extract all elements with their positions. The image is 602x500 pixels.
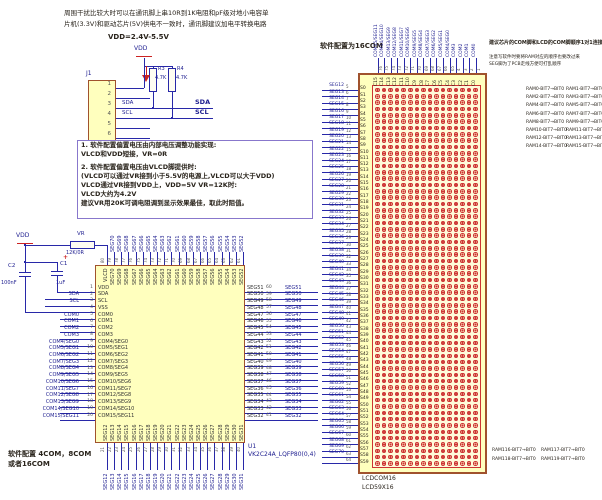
lcd-dot (395, 189, 400, 194)
net-label: SEG21 (329, 141, 344, 146)
net-label: SEG23 (329, 154, 344, 159)
lcd-dot (388, 373, 393, 378)
chip-pin-name: SEG42 (247, 346, 264, 351)
wire (243, 443, 244, 470)
lcd-pin-number: 44 (346, 331, 351, 335)
lcd-seg-row-label: S17 (360, 195, 369, 200)
lcd-dot (447, 183, 452, 188)
lcd-dot (401, 100, 406, 105)
lcd-dot (388, 278, 393, 283)
chip-pin-number: 78 (115, 258, 119, 263)
net-label: COM14/SEG10 (43, 407, 79, 412)
chip-pin-name: SEG56 (211, 268, 216, 285)
lcd-dot (428, 132, 433, 137)
lcd-pin-number: 50 (346, 369, 351, 373)
lcd-pin-number: 3 (464, 68, 468, 71)
wire (60, 420, 95, 421)
lcd-dot (401, 202, 406, 207)
ram-map-label: RAM118-BIT7→BIT0 (492, 458, 536, 463)
lcd-dot (408, 214, 413, 219)
wire (116, 118, 213, 119)
lcd-dot (460, 385, 465, 390)
lcd-dot (473, 392, 478, 397)
net-label: SEG34 (329, 223, 344, 228)
lcd-dot (375, 252, 380, 257)
lcd-dot (408, 461, 413, 466)
lcd-dot (421, 246, 426, 251)
chip-pin-number: 52 (266, 340, 272, 345)
lcd-seg-row-label: S57 (360, 448, 369, 453)
lcd-dot (460, 94, 465, 99)
net-label: SEG32 (285, 414, 302, 419)
ram-map-label: RAM4-BIT7→BIT0 (526, 104, 564, 109)
net-label: SEG49 (285, 299, 302, 304)
lcd-pin-number: 32 (346, 255, 351, 259)
lcd-dot (421, 417, 426, 422)
wire (116, 128, 150, 129)
chip-pin-name: SEG64 (154, 268, 159, 285)
net-label: SEG25 (329, 166, 344, 171)
lcd-dot (382, 442, 387, 447)
lcd-seg-row-label: S46 (360, 378, 369, 383)
chip-pin-number: 18 (80, 400, 93, 405)
chip-pin-name: COM5/SEG1 (98, 346, 128, 351)
lcd-dot (408, 126, 413, 131)
lcd-dot (388, 170, 393, 175)
lcd-pin-number: 13 (346, 135, 351, 139)
chip-pin-name: SEG51 (247, 286, 264, 291)
lcd-pin-number: 38 (346, 293, 351, 297)
lcd-dot (434, 195, 439, 200)
lcd-dot (460, 164, 465, 169)
lcd-dot (428, 157, 433, 162)
lcd-dot (415, 176, 420, 181)
lcd-dot (415, 411, 420, 416)
lcd-dot (395, 322, 400, 327)
lcd-dot (460, 145, 465, 150)
net-label: SEG64 (329, 413, 344, 418)
lcd-dot (447, 88, 452, 93)
lcd-dot (441, 176, 446, 181)
lcd-dot (434, 170, 439, 175)
chip-pin-name: SEG61 (176, 268, 181, 285)
lcd-dot (434, 259, 439, 264)
lcd-com-header: C11 (401, 77, 406, 86)
lcd-dot (421, 107, 426, 112)
lcd-seg-row-label: S28 (360, 264, 369, 269)
lcd-pin-number: 72 (405, 66, 409, 71)
net-label: COM13/SEG9 (388, 27, 393, 57)
lcd-dot (388, 183, 393, 188)
chip-pin-name: COM7/SEG3 (98, 360, 128, 365)
lcd-com-header: C4 (447, 79, 452, 85)
chip-pin-number: 56 (266, 313, 272, 318)
lcd-dot (473, 100, 478, 105)
chip-pin-name: SEG43 (247, 340, 264, 345)
lcd-dot (388, 271, 393, 276)
lcd-dot (447, 404, 452, 409)
lcd-dot (408, 170, 413, 175)
lcd-dot (460, 309, 465, 314)
lcd-dot (473, 404, 478, 409)
net-label: COM7/SEG3 (49, 360, 79, 365)
lcd-com-header: C6 (434, 79, 439, 85)
lcd-dot (408, 411, 413, 416)
lcd-dot (434, 366, 439, 371)
lcd-dot (401, 227, 406, 232)
lcd-dot (460, 411, 465, 416)
lcd-dot (382, 290, 387, 295)
lcd-dot (434, 297, 439, 302)
lcd-dot (428, 113, 433, 118)
net-label: COM3 (453, 44, 458, 57)
lcd-pin-number: 10 (346, 116, 351, 120)
lcd-dot (447, 449, 452, 454)
chip-pin-number: 21 (101, 447, 105, 452)
lcd-seg-row-label: S47 (360, 385, 369, 390)
lcd-dot (408, 322, 413, 327)
lcd-dot (473, 227, 478, 232)
lcd-dot (441, 113, 446, 118)
net-label: SEG51 (285, 286, 302, 291)
lcd-dot (454, 303, 459, 308)
lcd-com-header: C12 (394, 77, 399, 86)
lcd-pin-number: 20 (346, 179, 351, 183)
net-label: SEG19 (154, 473, 159, 490)
lcd-dot (421, 176, 426, 181)
lcd-seg-row-label: S50 (360, 404, 369, 409)
lcd-dot (434, 392, 439, 397)
lcd-dot (460, 183, 465, 188)
lcd-dot (421, 322, 426, 327)
lcd-dot (460, 303, 465, 308)
lcd-dot (447, 126, 452, 131)
net-label: COM14/SEG10 (381, 24, 386, 57)
net-label: COM1 (466, 44, 471, 57)
lcd-dot (401, 113, 406, 118)
chip-pin-number: 10 (80, 346, 93, 351)
wire (243, 252, 244, 265)
lcd-dot (454, 151, 459, 156)
lcd-dot (428, 442, 433, 447)
lcd-dot (375, 322, 380, 327)
lcd-dot (408, 290, 413, 295)
lcd-dot (401, 328, 406, 333)
lcd-dot (401, 240, 406, 245)
lcd-dot (421, 360, 426, 365)
lcd-dot (428, 119, 433, 124)
lcd-dot (428, 208, 433, 213)
lcd-dot (428, 461, 433, 466)
lcd-dot (408, 88, 413, 93)
lcd-name2: LCD59X16 (362, 485, 394, 491)
chip-pin-name: SEG39 (247, 366, 264, 371)
net-label: SEG19 (329, 129, 344, 134)
lcd-dot (375, 157, 380, 162)
lcd-dot (473, 214, 478, 219)
chip-pin-name: SDA (98, 292, 108, 297)
lcd-dot (382, 303, 387, 308)
net-label: SEG26 (329, 173, 344, 178)
chip-pin-number: 72 (158, 258, 162, 263)
lcd-dot (447, 233, 452, 238)
lcd-dot (388, 322, 393, 327)
lcd-dot (434, 322, 439, 327)
lcd-dot (375, 366, 380, 371)
lcd-dot (434, 442, 439, 447)
lcd-dot (401, 183, 406, 188)
lcd-dot (447, 290, 452, 295)
net-label: COM8/SEG4 (420, 30, 425, 57)
lcd-pin-number: 28 (346, 230, 351, 234)
lcd-note2: 注意写软件时要将RAM对应的顺序也要改过来 (489, 56, 580, 61)
chip-pin-name: COM0 (98, 313, 113, 318)
lcd-dot (441, 271, 446, 276)
chip-pin-number: 14 (80, 373, 93, 378)
lcd-dot (388, 335, 393, 340)
lcd-dot (401, 151, 406, 156)
wire (245, 420, 318, 421)
lcd-dot (473, 189, 478, 194)
lcd-seg-row-label: S10 (360, 151, 369, 156)
net-label: SEG39 (285, 366, 302, 371)
lcd-dot (408, 284, 413, 289)
chip-pin-number: 75 (137, 258, 141, 263)
chip-pin-name: SEG55 (219, 268, 224, 285)
net-label: SEG14 (118, 473, 123, 490)
lcd-dot (408, 157, 413, 162)
chip-pin-number: 68 (187, 258, 191, 263)
lcd-dot (441, 366, 446, 371)
lcd-dot (460, 221, 465, 226)
lcd-dot (408, 202, 413, 207)
lcd-dot (415, 404, 420, 409)
lcd-dot (388, 297, 393, 302)
chip-pin-number: 30 (165, 447, 169, 452)
lcd-dot (447, 392, 452, 397)
lcd-dot (460, 449, 465, 454)
net-label: SEG15 (329, 103, 344, 108)
lcd-dot (434, 240, 439, 245)
lcd-com-header: C5 (440, 79, 445, 85)
net-label: SEG52 (240, 235, 245, 252)
lcd-dot (382, 113, 387, 118)
vr-value: 12K/0R (66, 251, 84, 256)
lcd-dot (395, 170, 400, 175)
lcd-dot (375, 303, 380, 308)
lcd-pin-number: 56 (346, 407, 351, 411)
lcd-dot (408, 138, 413, 143)
resistor-r4-symbol (168, 68, 176, 92)
lcd-dot (388, 259, 393, 264)
chip-pin-number: 6 (80, 320, 93, 325)
lcd-dot (441, 404, 446, 409)
lcd-dot (408, 404, 413, 409)
net-label: COM1 (64, 319, 79, 324)
net-label: SEG15 (125, 473, 130, 490)
lcd-dot (408, 259, 413, 264)
lcd-dot (401, 385, 406, 390)
lcd-dot (460, 126, 465, 131)
chip-pin-number: 12 (80, 360, 93, 365)
wire (172, 92, 173, 118)
lcd-dot (434, 246, 439, 251)
lcd-dot (467, 246, 472, 251)
lcd-dot (460, 335, 465, 340)
chip-pin-number: 61 (237, 258, 241, 263)
net-label: SEG17 (329, 116, 344, 121)
lcd-dot (401, 132, 406, 137)
net-label: SEG29 (329, 192, 344, 197)
lcd-dot (421, 208, 426, 213)
lcd-seg-row-label: S56 (360, 442, 369, 447)
chip-pin-number: 43 (266, 400, 272, 405)
lcd-dot (467, 322, 472, 327)
ram-map-label: RAM3-BIT7→BIT0 (566, 96, 602, 101)
lcd-dot (375, 290, 380, 295)
lcd-dot (421, 366, 426, 371)
lcd-pin-number: 55 (346, 401, 351, 405)
lcd-dot (401, 271, 406, 276)
lcd-dot (460, 246, 465, 251)
lcd-com-header: C8 (421, 79, 426, 85)
net-label: SEG53 (329, 344, 344, 349)
chip-pin-number: 25 (129, 447, 133, 452)
lcd-dot (441, 284, 446, 289)
lcd-dot (415, 151, 420, 156)
lcd-dot (375, 430, 380, 435)
wire (322, 463, 358, 464)
lcd-seg-row-label: S4 (360, 113, 366, 118)
lcd-pin-number: 70 (418, 66, 422, 71)
lcd-pin-number: 37 (346, 287, 351, 291)
net-label: SEG66 (140, 235, 145, 252)
lcd-seg-row-label: S38 (360, 328, 369, 333)
lcd-dot (375, 151, 380, 156)
connector-pin-number: 4 (98, 112, 111, 118)
lcd-pin-number: 21 (346, 186, 351, 190)
lcd-dot (388, 461, 393, 466)
chip-pin-number: 8 (80, 333, 93, 338)
chip-pin-number: 15 (80, 380, 93, 385)
lcd-seg-row-label: S35 (360, 309, 369, 314)
lcd-dot (460, 297, 465, 302)
net-label: SEG17 (140, 473, 145, 490)
lcd-dot (401, 233, 406, 238)
lcd-dot (421, 170, 426, 175)
lcd-pin-number: 58 (346, 420, 351, 424)
lcd-seg-row-label: S5 (360, 119, 366, 124)
lcd-dot (434, 94, 439, 99)
lcd-pin-number: 71 (411, 66, 415, 71)
chip-part-number: VK2C24A_LQFP80(0,4) (248, 452, 316, 458)
net-label: SEG38 (285, 373, 302, 378)
lcd-dot (428, 385, 433, 390)
net-label: SEG55 (219, 235, 224, 252)
lcd-dot (460, 366, 465, 371)
lcd-seg-row-label: S43 (360, 359, 369, 364)
lcd-dot (460, 430, 465, 435)
lcd-dot (408, 233, 413, 238)
lcd-pin-number: 63 (346, 452, 351, 456)
chip-pin-number: 53 (266, 333, 272, 338)
lcd-dot (447, 189, 452, 194)
lcd-dot (382, 151, 387, 156)
lcd-pin-number: 11 (346, 122, 351, 126)
net-label: SEG43 (285, 340, 302, 345)
net-label: SEG58 (197, 235, 202, 252)
net-label: SEG23 (183, 473, 188, 490)
lcd-dot (421, 259, 426, 264)
lcd-dot (447, 240, 452, 245)
lcd-dot (447, 214, 452, 219)
lcd-dot (454, 322, 459, 327)
lcd-dot (447, 259, 452, 264)
net-label: SEG49 (329, 318, 344, 323)
lcd-dot (408, 94, 413, 99)
lcd-dot (421, 164, 426, 169)
chip-pin-name: SEG57 (204, 268, 209, 285)
lcd-seg-row-label: S25 (360, 245, 369, 250)
lcd-dot (388, 423, 393, 428)
lcd-dot (467, 303, 472, 308)
lcd-dot (375, 354, 380, 359)
lcd-dot (415, 227, 420, 232)
lcd-dot (434, 309, 439, 314)
lcd-dot (408, 373, 413, 378)
chip-refdes: U1 (248, 444, 256, 450)
chip-pin-name: SEG34 (247, 400, 264, 405)
lcd-dot (421, 189, 426, 194)
lcd-dot (441, 442, 446, 447)
lcd-dot (388, 309, 393, 314)
lcd-dot (375, 335, 380, 340)
lcd-dot (382, 208, 387, 213)
chip-pin-number: 4 (80, 306, 93, 311)
lcd-dot (408, 113, 413, 118)
chip-pin-name: COM11/SEG7 (98, 387, 131, 392)
lcd-pin-number: 52 (346, 382, 351, 386)
chip-pin-name: SEG50 (247, 292, 264, 297)
net-label: SEG35 (329, 230, 344, 235)
lcd-dot (388, 132, 393, 137)
lcd-dot (421, 335, 426, 340)
lcd-dot (447, 208, 452, 213)
net-label: SEG20 (329, 135, 344, 140)
lcd-seg-row-label: S59 (360, 461, 369, 466)
net-label: SEG32 (329, 211, 344, 216)
lcd-dot (473, 119, 478, 124)
lcd-dot (428, 227, 433, 232)
lcd-dot (388, 240, 393, 245)
lcd-dot (473, 246, 478, 251)
wire (57, 275, 58, 292)
lcd-dot (375, 113, 380, 118)
connector-refdes: J1 (86, 71, 92, 77)
net-label: SEG56 (329, 363, 344, 368)
lcd-dot (421, 290, 426, 295)
lcd-dot (401, 442, 406, 447)
net-label: SEG47 (285, 313, 302, 318)
chip-pin-number: 58 (266, 299, 272, 304)
lcd-pin-number: 57 (346, 414, 351, 418)
lcd-dot (447, 252, 452, 257)
lcd-dot (408, 246, 413, 251)
lcd-dot (467, 265, 472, 270)
lcd-dot (382, 347, 387, 352)
lcd-dot (408, 455, 413, 460)
chip-pin-name: SEG16 (133, 424, 138, 441)
